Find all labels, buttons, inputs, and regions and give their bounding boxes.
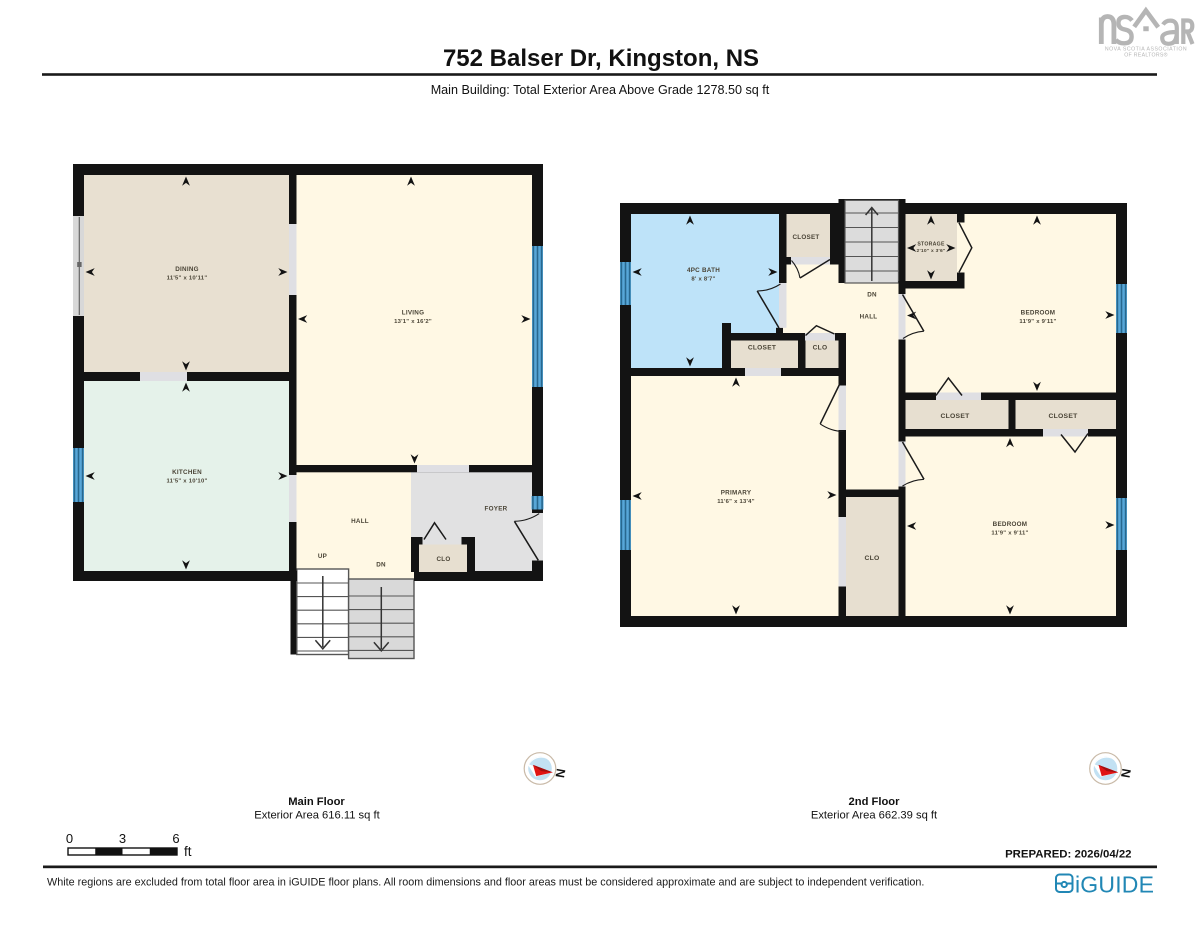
svg-text:0: 0 [66,831,73,846]
svg-text:CLO: CLO [813,345,828,352]
svg-text:HALL: HALL [860,314,878,321]
svg-text:4PC BATH: 4PC BATH [687,267,720,274]
svg-text:CLOSET: CLOSET [748,345,776,352]
svg-text:ft: ft [184,844,192,859]
svg-text:CLOSET: CLOSET [792,234,819,241]
svg-text:UP: UP [318,553,327,560]
svg-text:LIVING: LIVING [402,310,425,317]
svg-text:BEDROOM: BEDROOM [993,521,1028,528]
svg-text:DINING: DINING [175,266,199,273]
svg-text:KITCHEN: KITCHEN [172,469,202,476]
svg-text:2nd Floor: 2nd Floor [849,796,901,808]
svg-text:2'10" x 3'6": 2'10" x 3'6" [916,248,945,254]
svg-text:FOYER: FOYER [485,506,508,513]
svg-text:OF REALTORS®: OF REALTORS® [1124,52,1168,59]
svg-text:CLO: CLO [436,556,450,563]
svg-text:CLOSET: CLOSET [940,413,970,420]
svg-text:11'5" x 10'10": 11'5" x 10'10" [166,479,207,485]
svg-text:PREPARED: 2026/04/22: PREPARED: 2026/04/22 [1005,849,1131,861]
svg-text:STORAGE: STORAGE [917,242,945,248]
svg-text:PRIMARY: PRIMARY [721,490,752,497]
svg-text:11'5" x 10'11": 11'5" x 10'11" [167,276,208,282]
svg-text:Exterior Area 616.11 sq ft: Exterior Area 616.11 sq ft [254,810,380,822]
svg-text:11'9" x 9'11": 11'9" x 9'11" [1019,319,1056,325]
svg-text:3: 3 [119,831,126,846]
svg-text:CLO: CLO [864,555,879,562]
svg-text:11'6" x 13'4": 11'6" x 13'4" [717,499,755,505]
svg-text:DN: DN [867,292,877,299]
svg-text:13'1" x 16'2": 13'1" x 16'2" [394,319,432,325]
svg-text:Main Floor: Main Floor [288,796,345,808]
svg-text:HALL: HALL [351,518,369,525]
svg-text:CLOSET: CLOSET [1048,413,1078,420]
svg-text:White regions are excluded fro: White regions are excluded from total fl… [47,877,924,889]
svg-text:Main Building: Total Exterior: Main Building: Total Exterior Area Above… [431,83,770,97]
svg-text:Exterior Area 662.39 sq ft: Exterior Area 662.39 sq ft [811,810,938,822]
svg-text:BEDROOM: BEDROOM [1021,310,1056,317]
svg-text:11'9" x 9'11": 11'9" x 9'11" [991,531,1028,537]
svg-text:DN: DN [376,562,386,569]
svg-text:6: 6 [172,831,179,846]
svg-text:8' x 8'7": 8' x 8'7" [691,277,715,283]
svg-text:752 Balser Dr, Kingston, NS: 752 Balser Dr, Kingston, NS [443,45,759,72]
svg-text:iGUIDE: iGUIDE [1075,872,1154,898]
